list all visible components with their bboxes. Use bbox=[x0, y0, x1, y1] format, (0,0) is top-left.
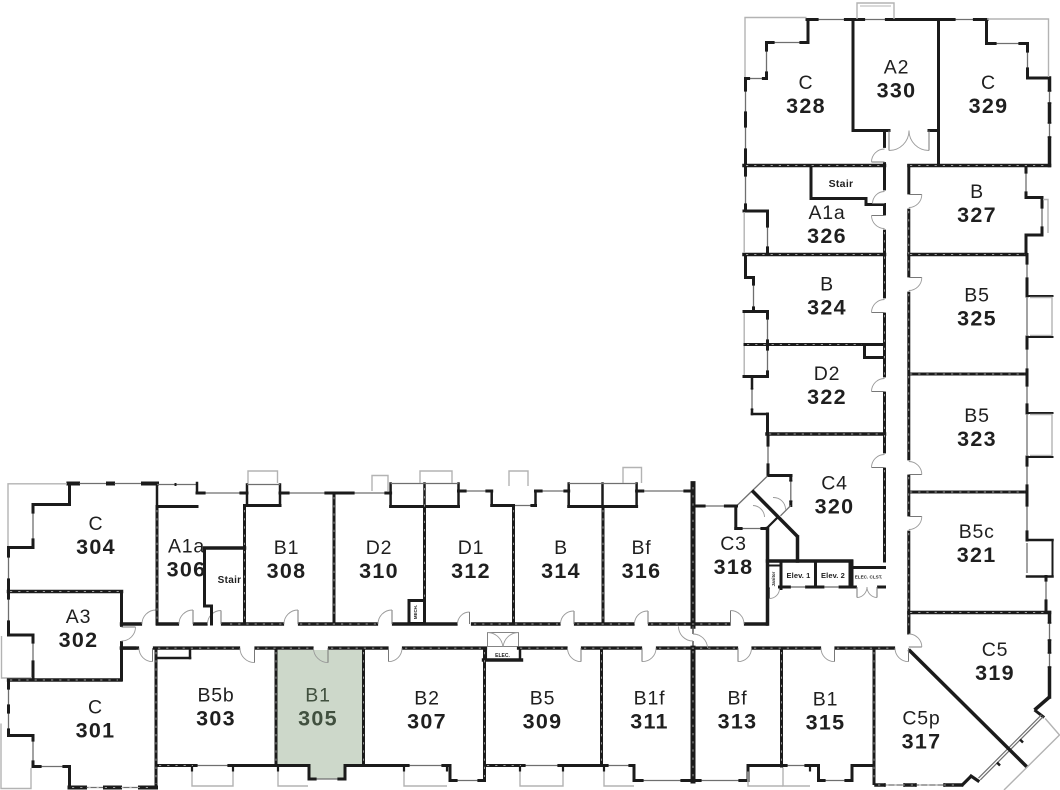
svg-text:B1f: B1f bbox=[634, 688, 666, 710]
svg-text:B1: B1 bbox=[274, 537, 299, 559]
svg-text:311: 311 bbox=[630, 710, 669, 734]
svg-text:B: B bbox=[820, 274, 834, 296]
svg-text:313: 313 bbox=[718, 710, 758, 734]
svg-text:317: 317 bbox=[902, 730, 942, 754]
svg-text:325: 325 bbox=[957, 307, 997, 331]
svg-text:Janitor: Janitor bbox=[771, 571, 776, 586]
svg-text:Bf: Bf bbox=[631, 537, 651, 559]
svg-text:C: C bbox=[88, 697, 103, 719]
svg-text:315: 315 bbox=[806, 711, 846, 735]
svg-text:306: 306 bbox=[167, 558, 207, 582]
svg-text:Stair: Stair bbox=[218, 575, 242, 586]
svg-text:C4: C4 bbox=[821, 473, 848, 495]
svg-text:305: 305 bbox=[298, 707, 338, 731]
svg-text:B5: B5 bbox=[964, 285, 989, 307]
svg-text:320: 320 bbox=[815, 495, 855, 519]
svg-text:318: 318 bbox=[714, 555, 754, 579]
svg-text:B: B bbox=[554, 537, 568, 559]
svg-text:312: 312 bbox=[451, 559, 491, 583]
svg-text:A3: A3 bbox=[66, 606, 91, 628]
svg-text:D2: D2 bbox=[814, 363, 841, 385]
svg-text:A1a: A1a bbox=[808, 202, 845, 224]
svg-text:Stair: Stair bbox=[829, 178, 854, 190]
svg-text:ELEC.: ELEC. bbox=[495, 653, 510, 659]
svg-text:309: 309 bbox=[523, 710, 563, 734]
svg-text:D1: D1 bbox=[458, 537, 485, 559]
svg-text:Bf: Bf bbox=[727, 688, 747, 710]
svg-text:319: 319 bbox=[975, 661, 1015, 685]
svg-text:330: 330 bbox=[877, 79, 917, 103]
svg-text:302: 302 bbox=[59, 628, 99, 652]
svg-text:C: C bbox=[799, 72, 814, 94]
svg-text:A1a: A1a bbox=[168, 536, 205, 558]
svg-text:B1: B1 bbox=[305, 685, 330, 707]
svg-text:B2: B2 bbox=[414, 688, 439, 710]
svg-text:329: 329 bbox=[969, 94, 1009, 118]
svg-text:B1: B1 bbox=[813, 689, 838, 711]
svg-text:D2: D2 bbox=[366, 537, 393, 559]
svg-text:324: 324 bbox=[807, 296, 847, 320]
svg-text:328: 328 bbox=[786, 94, 826, 118]
svg-text:326: 326 bbox=[807, 224, 847, 248]
svg-text:B5c: B5c bbox=[959, 521, 995, 543]
svg-text:310: 310 bbox=[359, 559, 399, 583]
svg-text:MECH.: MECH. bbox=[413, 605, 418, 619]
svg-text:301: 301 bbox=[76, 719, 116, 743]
svg-text:308: 308 bbox=[267, 559, 307, 583]
svg-text:322: 322 bbox=[807, 385, 847, 409]
svg-text:ELEC. CLST.: ELEC. CLST. bbox=[855, 575, 883, 580]
svg-text:C5p: C5p bbox=[902, 708, 940, 730]
svg-text:Elev. 2: Elev. 2 bbox=[821, 571, 845, 580]
svg-text:303: 303 bbox=[196, 707, 236, 731]
svg-text:B5b: B5b bbox=[197, 685, 234, 707]
svg-text:C: C bbox=[981, 72, 996, 94]
svg-text:Elev. 1: Elev. 1 bbox=[787, 571, 811, 580]
svg-text:327: 327 bbox=[957, 203, 997, 227]
svg-text:314: 314 bbox=[541, 559, 581, 583]
svg-text:C3: C3 bbox=[720, 533, 747, 555]
svg-text:C: C bbox=[89, 513, 104, 535]
svg-text:307: 307 bbox=[407, 710, 447, 734]
svg-text:B: B bbox=[970, 181, 984, 203]
svg-text:A2: A2 bbox=[884, 57, 909, 79]
svg-text:B5: B5 bbox=[530, 688, 555, 710]
svg-text:C5: C5 bbox=[982, 639, 1009, 661]
svg-text:323: 323 bbox=[957, 427, 997, 451]
svg-text:321: 321 bbox=[957, 543, 997, 567]
svg-text:B5: B5 bbox=[964, 405, 989, 427]
svg-text:316: 316 bbox=[622, 559, 662, 583]
svg-text:304: 304 bbox=[76, 535, 116, 559]
